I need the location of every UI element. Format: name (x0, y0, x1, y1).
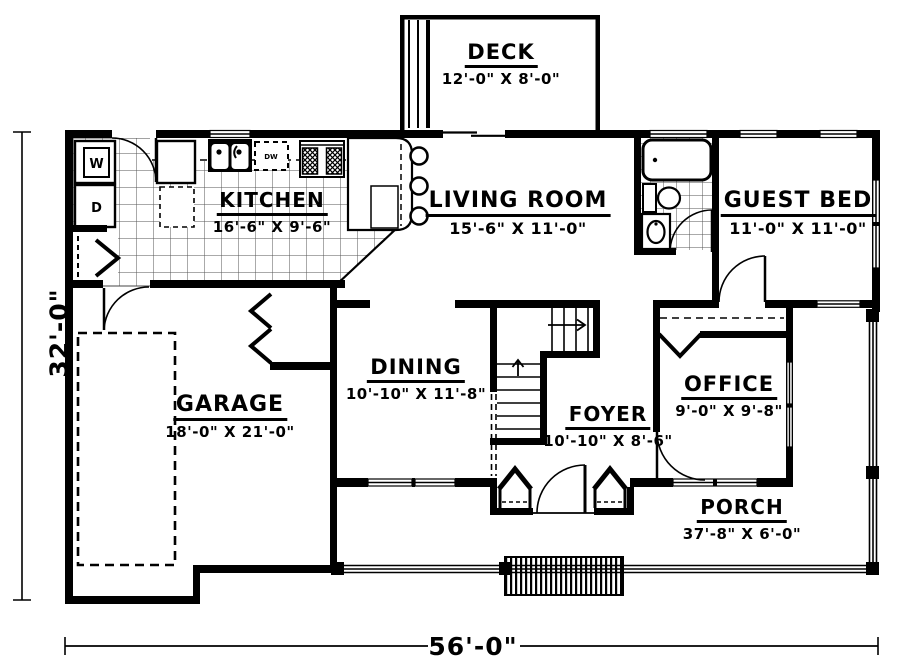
kitchen-sink (208, 139, 252, 172)
garage-door (104, 287, 149, 330)
room-label-garage: GARAGE 18'-0" X 21'-0" (165, 392, 294, 441)
refrigerator (157, 141, 195, 227)
vanity-sink (642, 214, 670, 249)
overall-width-dimension: 56'-0" (428, 632, 517, 661)
garage-closet-bifold (251, 294, 271, 363)
room-label-porch: PORCH 37'-8" X 6'-0" (683, 495, 801, 543)
breakfast-bar (348, 138, 412, 230)
sliding-door (443, 130, 505, 138)
room-label-office: OFFICE 9'-0" X 9'-8" (675, 372, 783, 420)
pantry-closet (73, 231, 118, 281)
porch-steps (505, 557, 623, 595)
front-door (533, 465, 594, 513)
room-label-guest-bed: GUEST BED 11'-0" X 11'-0" (721, 188, 876, 238)
svg-text:W: W (89, 157, 103, 172)
svg-text:DW: DW (264, 153, 278, 161)
room-label-deck: DECK 12'-0" X 8'-0" (442, 40, 560, 88)
overall-height-dimension: 32'-0" (45, 288, 74, 378)
room-label-dining: DINING 10'-10" X 11'-8" (346, 355, 486, 403)
bathtub (643, 140, 711, 180)
dishwasher: DW (255, 142, 288, 170)
room-label-living-room: LIVING ROOM 15'-6" X 11'-0" (426, 188, 611, 238)
svg-text:D: D (91, 201, 102, 216)
washer-dryer: W D (75, 141, 115, 227)
room-label-foyer: FOYER 10'-10" X 8'-6" (543, 402, 672, 450)
range-stove (300, 141, 344, 177)
entry-sidelight-bays (499, 469, 626, 508)
guest-bed-door (719, 256, 765, 302)
office-closet-bifold (659, 334, 701, 356)
room-label-kitchen: KITCHEN 16'-6" X 9'-6" (213, 188, 331, 236)
floor-plan: DW W D (0, 0, 900, 668)
floor-plan-drawing: DW W D (0, 0, 900, 668)
